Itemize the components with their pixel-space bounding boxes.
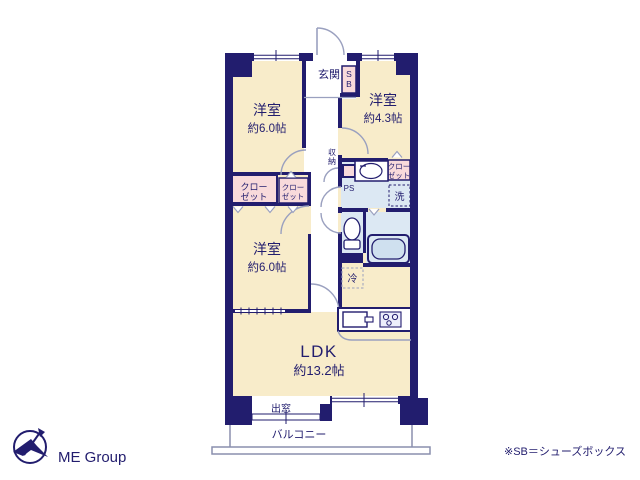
bay-window-label: 出窓: [271, 402, 291, 415]
wall-entrance-left: [302, 61, 306, 148]
wall-hall-left-lower: [308, 234, 311, 312]
washbasin-icon: [355, 161, 388, 181]
closet-left-small-label-2: ゼット: [282, 191, 305, 201]
fridge-label: 冷: [348, 272, 358, 285]
wall-sb-bottom: [340, 93, 360, 97]
room-top-left-size: 約6.0帖: [248, 121, 287, 135]
pipe-space-top-box: [343, 165, 355, 177]
wall-washroom-bottom-b: [386, 208, 411, 212]
kitchen-faucet-icon: [365, 317, 373, 322]
kitchen-stove-icon: [380, 312, 401, 327]
wall-hall-right-c: [338, 232, 342, 312]
room-top-left-name: 洋室: [253, 102, 281, 118]
kitchen-sink-icon: [343, 312, 367, 327]
bay-window-icon: [252, 396, 332, 424]
closet-right-label-2: ゼット: [388, 170, 411, 180]
closet-left-large-label-1: クロー: [240, 182, 267, 192]
ps-bottom-label: PS: [347, 254, 358, 263]
wall-hall-right-a: [338, 155, 342, 187]
wall-closet-right: [308, 172, 311, 206]
logo-text: ME Group: [58, 449, 126, 466]
window-top-right-icon: [362, 50, 394, 61]
balcony-rail: [212, 447, 430, 454]
wall-closet-top: [229, 172, 311, 175]
wall-toilet-bath: [363, 212, 366, 253]
closet-right-label-1: クロー: [388, 162, 411, 171]
room-mid-left-size: 約6.0帖: [248, 260, 287, 274]
entrance-door-icon: [317, 28, 344, 55]
wall-sb-right: [356, 61, 360, 97]
entrance-label: 玄関: [318, 67, 340, 81]
ldk-name: LDK: [300, 342, 338, 361]
ldk-size: 約13.2帖: [293, 363, 344, 378]
pillar-bottom-right: [400, 398, 428, 425]
room-top-right-name: 洋室: [369, 92, 397, 108]
closet-left-small-label-1: クロー: [282, 183, 305, 192]
ps-top-label: PS: [344, 184, 355, 193]
pillar-bottom-left: [225, 398, 252, 425]
storage-label-2: 納: [328, 156, 336, 166]
laundry-label: 洗: [395, 191, 405, 203]
wall-room43-left-upper: [338, 97, 342, 128]
toilet-icon: [344, 218, 360, 249]
window-top-left-icon: [254, 50, 299, 61]
me-group-logo-icon: [13, 428, 48, 463]
shoes-box-label-2: B: [346, 79, 352, 89]
balcony-label: バルコニー: [272, 428, 327, 441]
closet-left-large-label-2: ゼット: [240, 191, 267, 202]
floor-plan-page: 玄関 S B 洋室 約6.0帖 洋室 約4.3帖 クロー ゼット クロー ゼット…: [0, 0, 640, 480]
room-top-right-size: 約4.3帖: [364, 111, 403, 125]
wall-washroom-bottom-a: [341, 208, 368, 212]
wall-right: [410, 53, 418, 404]
shoes-box-label-1: S: [346, 69, 352, 79]
bathtub-icon: [368, 235, 409, 263]
sb-note: ※SB＝シューズボックス: [504, 444, 626, 458]
entrance-opening: [313, 53, 347, 61]
wall-left: [225, 53, 233, 404]
room-mid-left-name: 洋室: [253, 241, 281, 257]
storage-label-1: 収: [328, 147, 336, 157]
wall-closet-bottom: [229, 203, 311, 206]
floor-plan-canvas: 玄関 S B 洋室 約6.0帖 洋室 約4.3帖 クロー ゼット クロー ゼット…: [0, 0, 640, 480]
